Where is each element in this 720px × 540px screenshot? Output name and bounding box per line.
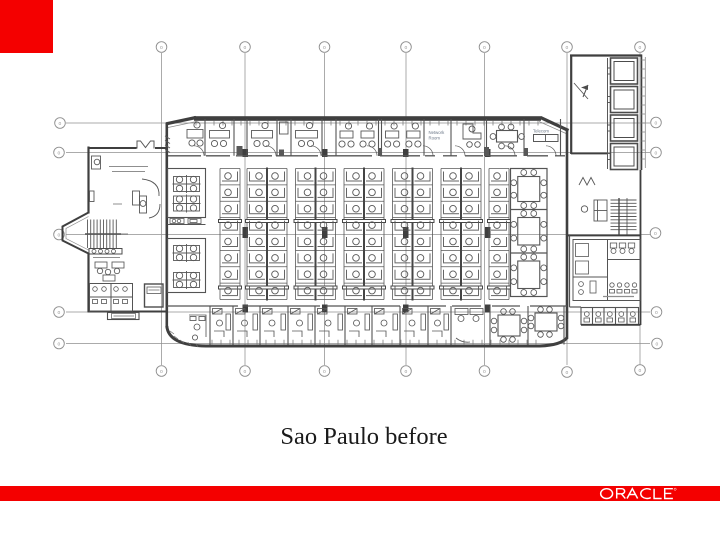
svg-text:o: o [566, 370, 569, 376]
svg-text:o: o [323, 45, 326, 51]
svg-text:o: o [483, 45, 486, 51]
svg-text:o: o [160, 45, 163, 51]
svg-text:o: o [654, 231, 657, 237]
svg-text:o: o [483, 369, 486, 375]
svg-text:o: o [405, 369, 408, 375]
svg-text:o: o [655, 120, 658, 126]
svg-text:o: o [58, 341, 61, 347]
svg-text:o: o [655, 310, 658, 316]
svg-text:o: o [655, 150, 658, 156]
svg-text:o: o [639, 368, 642, 374]
svg-text:o: o [58, 150, 61, 156]
svg-text:o: o [639, 45, 642, 51]
svg-text:Telecom: Telecom [533, 129, 549, 134]
svg-text:Room: Room [429, 136, 441, 141]
svg-text:o: o [58, 232, 61, 238]
svg-text:o: o [656, 341, 659, 347]
svg-text:o: o [244, 45, 247, 51]
svg-text:o: o [58, 310, 61, 316]
svg-text:o: o [566, 45, 569, 51]
svg-text:o: o [405, 45, 408, 51]
svg-text:o: o [160, 369, 163, 375]
svg-text:o: o [244, 369, 247, 375]
svg-text:Network: Network [429, 130, 446, 135]
svg-text:o: o [323, 369, 326, 375]
svg-text:o: o [59, 121, 62, 127]
